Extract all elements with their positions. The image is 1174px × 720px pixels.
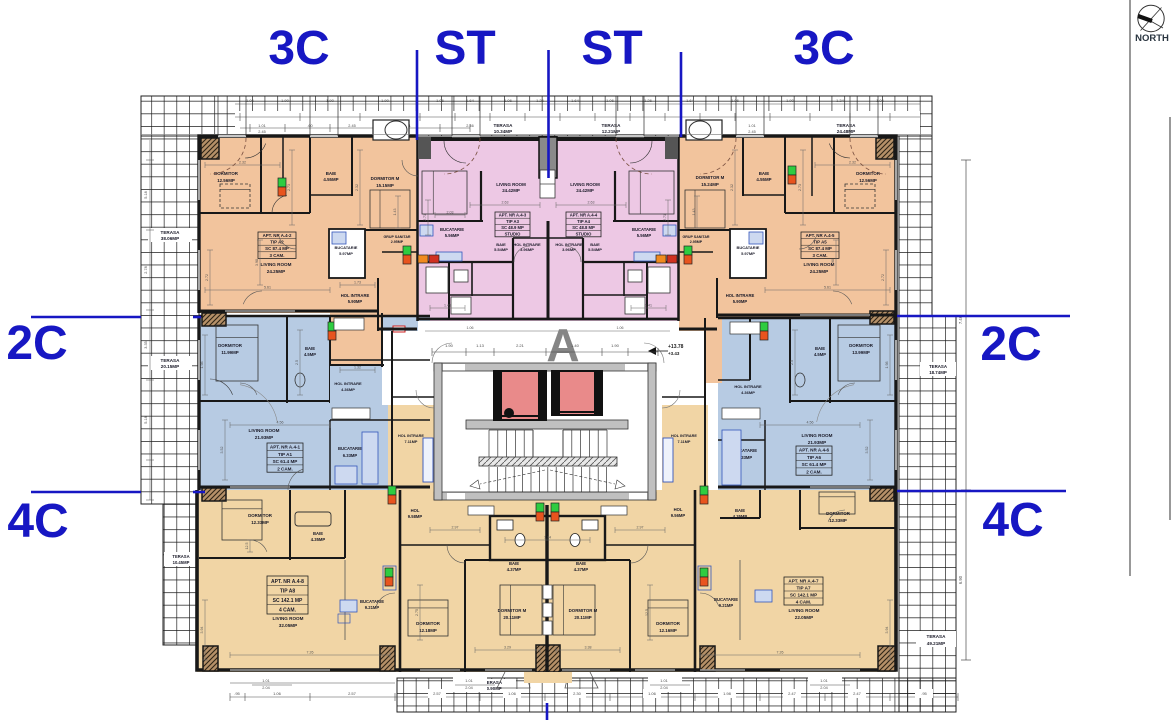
svg-text:32.05MP: 32.05MP [279, 623, 297, 628]
svg-text:9.56MP: 9.56MP [671, 513, 686, 518]
svg-text:DORMITOR: DORMITOR [849, 343, 874, 348]
svg-text:1.06: 1.06 [504, 98, 513, 103]
svg-text:4.56: 4.56 [807, 421, 814, 425]
svg-text:TIP A6: TIP A6 [807, 455, 821, 460]
svg-text:STUDIO: STUDIO [576, 231, 593, 236]
svg-text:2.97: 2.97 [637, 526, 644, 530]
svg-text:1.64: 1.64 [686, 98, 695, 103]
svg-text:1.41: 1.41 [444, 304, 451, 308]
svg-text:2.45: 2.45 [748, 130, 755, 134]
svg-text:1.73: 1.73 [354, 281, 361, 285]
svg-text:2.71: 2.71 [663, 214, 667, 221]
svg-text:BAIE: BAIE [313, 531, 323, 536]
svg-text:3.29: 3.29 [504, 646, 511, 650]
svg-text:HOL INTRARE: HOL INTRARE [334, 381, 362, 386]
svg-text:HOL INTRARE: HOL INTRARE [726, 293, 755, 298]
svg-text:15.24MP: 15.24MP [701, 182, 719, 187]
svg-text:HOL INTRARE: HOL INTRARE [398, 434, 424, 438]
svg-text:12.18MP: 12.18MP [419, 628, 437, 633]
svg-text:2.47: 2.47 [853, 691, 862, 696]
svg-text:TERASA: TERASA [161, 358, 181, 363]
svg-text:LIVING ROOM: LIVING ROOM [249, 428, 280, 433]
svg-text:21.93MP: 21.93MP [808, 440, 826, 445]
svg-text:1.06: 1.06 [273, 691, 282, 696]
svg-text:3.94: 3.94 [885, 627, 889, 634]
svg-text:4C: 4C [982, 494, 1043, 547]
svg-text:4.55MP: 4.55MP [323, 177, 338, 182]
svg-text:1.06: 1.06 [606, 98, 615, 103]
svg-text:5.54MP: 5.54MP [588, 247, 602, 252]
svg-text:HOL: HOL [411, 508, 420, 513]
svg-text:2.75: 2.75 [415, 609, 419, 616]
svg-text:2.32: 2.32 [239, 161, 246, 165]
svg-text:2.04: 2.04 [262, 686, 269, 690]
svg-text:BUCATARIE: BUCATARIE [714, 597, 738, 602]
svg-text:5.61: 5.61 [824, 286, 831, 290]
svg-text:BUCATARIE: BUCATARIE [632, 227, 656, 232]
svg-text:2.04: 2.04 [820, 686, 827, 690]
svg-text:4C: 4C [7, 495, 68, 548]
svg-text:4.5MP: 4.5MP [814, 352, 826, 357]
svg-text:TIP A2: TIP A2 [270, 240, 284, 245]
svg-text:3C: 3C [268, 22, 329, 75]
svg-text:9.58MP: 9.58MP [408, 514, 423, 519]
svg-text:LIVING ROOM: LIVING ROOM [789, 608, 820, 613]
svg-text:2.57: 2.57 [348, 691, 357, 696]
svg-text:10.34MP: 10.34MP [494, 129, 512, 134]
svg-text:5.97MP: 5.97MP [339, 251, 353, 256]
svg-text:+3.43: +3.43 [668, 351, 680, 356]
svg-text:TERASA: TERASA [927, 634, 947, 639]
svg-text:3.52: 3.52 [220, 447, 224, 454]
svg-text:BAIE: BAIE [815, 346, 825, 351]
svg-text:BUCATARIE: BUCATARIE [737, 245, 760, 250]
svg-text:20.11MP: 20.11MP [503, 615, 520, 620]
svg-text:7.11MP: 7.11MP [678, 440, 691, 444]
svg-text:2.73: 2.73 [798, 184, 802, 191]
svg-text:12.5: 12.5 [245, 543, 249, 550]
svg-text:APT. NR A.4-1: APT. NR A.4-1 [270, 444, 301, 449]
svg-text:GRUP SANITAR: GRUP SANITAR [682, 235, 709, 239]
svg-text:12.21MP: 12.21MP [602, 129, 620, 134]
svg-text:DORMITOR: DORMITOR [218, 343, 243, 348]
svg-text:1.06: 1.06 [617, 326, 624, 330]
svg-text:APT. NR A.4-8: APT. NR A.4-8 [271, 579, 304, 585]
svg-text:2C: 2C [6, 317, 67, 370]
svg-text:TIP A1: TIP A1 [278, 452, 292, 457]
svg-text:TIP A5: TIP A5 [813, 240, 827, 245]
svg-text:APT. NR A.4-7: APT. NR A.4-7 [788, 578, 819, 583]
svg-text:2.5: 2.5 [295, 360, 299, 365]
svg-text:DORMITOR: DORMITOR [214, 171, 239, 176]
svg-text:2.32: 2.32 [355, 184, 359, 191]
svg-text:3.94: 3.94 [200, 627, 204, 634]
svg-text:4.37MP: 4.37MP [574, 567, 589, 572]
svg-text:DORMITOR M: DORMITOR M [371, 176, 400, 181]
svg-text:24.42MP: 24.42MP [502, 188, 520, 193]
svg-text:5.54MP: 5.54MP [494, 247, 508, 252]
svg-text:2.32: 2.32 [730, 184, 734, 191]
svg-text:+13.78: +13.78 [668, 344, 684, 350]
svg-text:LIVING ROOM: LIVING ROOM [261, 262, 292, 267]
svg-text:20.15MP: 20.15MP [161, 364, 179, 369]
svg-text:4.36MP: 4.36MP [341, 387, 355, 392]
svg-text:38.06MP: 38.06MP [161, 236, 179, 241]
svg-text:APT. NR A.4-2: APT. NR A.4-2 [263, 233, 292, 238]
svg-text:HOL INTRARE: HOL INTRARE [341, 293, 370, 298]
svg-text:6.33MP: 6.33MP [343, 453, 358, 458]
svg-text:TIP A3: TIP A3 [506, 219, 519, 224]
svg-text:1.01: 1.01 [262, 679, 269, 683]
svg-text:2.04: 2.04 [465, 686, 472, 690]
svg-text:1.01: 1.01 [820, 679, 827, 683]
svg-text:SC 61.4 MP: SC 61.4 MP [273, 459, 298, 464]
svg-text:NORTH: NORTH [1135, 33, 1169, 44]
svg-text:2.63: 2.63 [502, 201, 509, 205]
svg-text:HOL INTRARE: HOL INTRARE [734, 384, 762, 389]
svg-text:4.35MP: 4.35MP [311, 537, 326, 542]
svg-text:TERASA: TERASA [837, 123, 857, 128]
svg-text:SC 48.9 MP: SC 48.9 MP [501, 225, 524, 230]
svg-text:DORMITOR: DORMITOR [656, 621, 681, 626]
svg-text:BAIE: BAIE [759, 171, 770, 176]
svg-text:BUCATARIE: BUCATARIE [360, 599, 384, 604]
svg-text:1.98: 1.98 [885, 362, 889, 369]
svg-text:1.06: 1.06 [508, 691, 517, 696]
svg-text:2 CAM.: 2 CAM. [277, 466, 293, 471]
svg-text:4.37MP: 4.37MP [507, 567, 522, 572]
svg-text:DORMITOR M: DORMITOR M [569, 608, 598, 613]
svg-text:1.26: 1.26 [536, 98, 545, 103]
svg-text:APT. NR A.4-6: APT. NR A.4-6 [799, 447, 830, 452]
svg-text:LIVING ROOM: LIVING ROOM [802, 433, 833, 438]
svg-text:1.26: 1.26 [644, 98, 653, 103]
svg-text:9.21MP: 9.21MP [719, 603, 734, 608]
svg-text:2.72: 2.72 [881, 274, 885, 281]
svg-text:5.18: 5.18 [144, 191, 148, 198]
svg-text:18.74MP: 18.74MP [929, 370, 947, 375]
svg-text:4 CAM.: 4 CAM. [796, 599, 812, 604]
svg-text:2.30: 2.30 [573, 691, 582, 696]
svg-text:5.18: 5.18 [144, 416, 148, 423]
svg-text:2.57: 2.57 [433, 691, 442, 696]
svg-text:24.48MP: 24.48MP [837, 129, 855, 134]
svg-text:2.72: 2.72 [205, 274, 209, 281]
svg-text:DORMITOR M: DORMITOR M [696, 175, 725, 180]
svg-text:TERASA: TERASA [602, 123, 622, 128]
svg-text:5.90MP: 5.90MP [348, 299, 363, 304]
svg-text:2.71: 2.71 [423, 214, 427, 221]
svg-text:4.36MP: 4.36MP [741, 390, 755, 395]
svg-text:3.98: 3.98 [831, 259, 835, 266]
svg-text:1.41: 1.41 [645, 304, 652, 308]
svg-text:1.64: 1.64 [466, 98, 475, 103]
svg-text:5.56MP: 5.56MP [637, 233, 652, 238]
svg-text:TERASA: TERASA [494, 123, 514, 128]
svg-text:5.61: 5.61 [264, 286, 271, 290]
svg-text:2.04: 2.04 [660, 686, 667, 690]
svg-text:2.73: 2.73 [287, 184, 291, 191]
svg-text:TIP A8: TIP A8 [280, 589, 296, 595]
svg-text:5.56MP: 5.56MP [445, 233, 460, 238]
svg-text:SC 87.4 MP: SC 87.4 MP [265, 246, 289, 251]
svg-text:BAIE: BAIE [326, 171, 337, 176]
svg-text:SC 142.1 MP: SC 142.1 MP [790, 592, 817, 597]
svg-text:3.96MP: 3.96MP [562, 247, 576, 252]
svg-text:1.32: 1.32 [354, 366, 361, 370]
svg-text:12.16MP: 12.16MP [659, 628, 677, 633]
svg-text:3.98: 3.98 [255, 259, 259, 266]
svg-text:4.35MP: 4.35MP [733, 514, 748, 519]
svg-text:BUCATARIE: BUCATARIE [440, 227, 464, 232]
svg-text:1.13: 1.13 [476, 343, 485, 348]
svg-text:9.21MP: 9.21MP [365, 605, 380, 610]
svg-text:24.42MP: 24.42MP [576, 188, 594, 193]
svg-text:3.35: 3.35 [144, 341, 148, 348]
svg-text:1.64: 1.64 [571, 98, 580, 103]
svg-text:SC 87.4 MP: SC 87.4 MP [808, 246, 832, 251]
svg-text:24.25MP: 24.25MP [267, 269, 285, 274]
svg-text:1.90: 1.90 [786, 98, 795, 103]
svg-text:TIP A4: TIP A4 [577, 219, 590, 224]
svg-text:BAIE: BAIE [735, 508, 745, 513]
svg-text:.95: .95 [234, 691, 240, 696]
svg-text:SC 61.4 MP: SC 61.4 MP [802, 462, 827, 467]
svg-text:2.63: 2.63 [588, 201, 595, 205]
svg-text:7.26: 7.26 [777, 651, 784, 655]
svg-text:24.25MP: 24.25MP [810, 269, 828, 274]
svg-text:BUCATARIE: BUCATARIE [338, 446, 362, 451]
svg-text:LIVING ROOM: LIVING ROOM [496, 182, 526, 187]
svg-text:DORMITOR: DORMITOR [248, 513, 273, 518]
svg-text:APT. NR A.4-4: APT. NR A.4-4 [570, 213, 598, 218]
svg-text:2.5: 2.5 [790, 360, 794, 365]
svg-text:12.56MP: 12.56MP [217, 178, 235, 183]
svg-text:7.11MP: 7.11MP [405, 440, 418, 444]
svg-text:STUDIO: STUDIO [505, 231, 522, 236]
svg-text:6.90: 6.90 [958, 575, 963, 584]
svg-text:GRUP SANITAR: GRUP SANITAR [383, 235, 410, 239]
svg-text:7.26: 7.26 [307, 651, 314, 655]
svg-text:1.06: 1.06 [436, 98, 445, 103]
svg-text:1.01: 1.01 [748, 124, 755, 128]
svg-text:11.99MP: 11.99MP [221, 350, 238, 355]
svg-text:4 CAM.: 4 CAM. [279, 608, 297, 614]
svg-text:1.98: 1.98 [200, 362, 204, 369]
svg-text:TERASA: TERASA [172, 554, 189, 559]
svg-text:1.01: 1.01 [258, 124, 265, 128]
svg-text:1.43: 1.43 [692, 209, 696, 216]
svg-text:LIVING ROOM: LIVING ROOM [570, 182, 600, 187]
svg-text:TERASA: TERASA [161, 230, 181, 235]
svg-text:HOL INTRARE: HOL INTRARE [671, 434, 697, 438]
svg-text:1.90: 1.90 [381, 98, 390, 103]
svg-text:LIVING ROOM: LIVING ROOM [804, 262, 835, 267]
svg-text:SC 48.8 MP: SC 48.8 MP [572, 225, 595, 230]
svg-text:2.78: 2.78 [144, 266, 148, 273]
svg-text:1.98: 1.98 [723, 691, 732, 696]
svg-text:13.99MP: 13.99MP [852, 350, 870, 355]
svg-text:49.21MP: 49.21MP [927, 641, 945, 646]
svg-text:2.03: 2.03 [447, 211, 454, 215]
svg-text:2.95MP: 2.95MP [690, 240, 703, 244]
svg-text:2 CAM.: 2 CAM. [806, 469, 822, 474]
svg-text:2.95MP: 2.95MP [391, 240, 404, 244]
svg-text:20.11MP: 20.11MP [574, 615, 591, 620]
svg-text:4.55MP: 4.55MP [756, 177, 771, 182]
svg-text:2.32: 2.32 [849, 161, 856, 165]
svg-text:2.97: 2.97 [452, 526, 459, 530]
svg-text:3 CAM.: 3 CAM. [270, 253, 285, 258]
svg-text:3.52: 3.52 [865, 447, 869, 454]
svg-text:APT. NR A.4-5: APT. NR A.4-5 [806, 233, 835, 238]
svg-text:3C: 3C [793, 22, 854, 75]
svg-text:DORMITOR: DORMITOR [826, 511, 851, 516]
svg-text:22.05MP: 22.05MP [795, 615, 813, 620]
svg-text:APT. NR A.4-3: APT. NR A.4-3 [499, 213, 527, 218]
svg-text:HOL: HOL [674, 507, 683, 512]
svg-text:.95: .95 [921, 691, 927, 696]
svg-text:3.38: 3.38 [585, 646, 592, 650]
svg-text:1.90: 1.90 [281, 98, 290, 103]
svg-text:10.45MP: 10.45MP [173, 560, 190, 565]
svg-text:BAIE: BAIE [576, 561, 586, 566]
svg-text:ST: ST [434, 22, 495, 75]
svg-text:2.45: 2.45 [348, 124, 355, 128]
svg-text:1.06: 1.06 [731, 98, 740, 103]
svg-text:12.5: 12.5 [645, 609, 649, 616]
svg-text:BAIE: BAIE [305, 346, 315, 351]
svg-text:12.56MP: 12.56MP [859, 178, 877, 183]
svg-text:1.90: 1.90 [611, 343, 620, 348]
svg-text:BUCATARIE: BUCATARIE [335, 245, 358, 250]
svg-text:1.06: 1.06 [467, 326, 474, 330]
svg-text:12.33MP: 12.33MP [829, 518, 847, 523]
svg-text:2.46: 2.46 [466, 124, 473, 128]
svg-text:1.43: 1.43 [393, 209, 397, 216]
svg-text:2C: 2C [980, 318, 1041, 371]
svg-text:1.40: 1.40 [571, 343, 580, 348]
svg-text:4.56: 4.56 [277, 421, 284, 425]
svg-text:4.5MP: 4.5MP [304, 352, 316, 357]
svg-text:5.90MP: 5.90MP [733, 299, 748, 304]
svg-text:2.21: 2.21 [516, 343, 525, 348]
svg-text:2.45: 2.45 [258, 130, 265, 134]
svg-text:1.74: 1.74 [544, 536, 551, 540]
svg-text:TERASA: TERASA [929, 364, 948, 369]
svg-text:SC 142.1 MP: SC 142.1 MP [273, 598, 303, 604]
svg-text:1.06: 1.06 [246, 98, 255, 103]
svg-text:ST: ST [581, 22, 642, 75]
svg-text:1.01: 1.01 [660, 679, 667, 683]
svg-text:1.06: 1.06 [876, 98, 885, 103]
svg-text:TIP A7: TIP A7 [796, 585, 810, 590]
svg-text:12.33MP: 12.33MP [251, 520, 269, 525]
svg-text:DORMITOR: DORMITOR [856, 171, 881, 176]
svg-text:2.47: 2.47 [788, 691, 797, 696]
svg-text:1.01: 1.01 [465, 679, 472, 683]
svg-text:1.90: 1.90 [326, 98, 335, 103]
svg-text:1.34: 1.34 [836, 98, 845, 103]
svg-text:LIVING ROOM: LIVING ROOM [273, 616, 304, 621]
svg-text:21.93MP: 21.93MP [255, 435, 273, 440]
svg-text:BAIE: BAIE [509, 561, 519, 566]
svg-text:15.15MP: 15.15MP [376, 183, 394, 188]
svg-text:3 CAM.: 3 CAM. [813, 253, 828, 258]
svg-text:DORMITOR M: DORMITOR M [498, 608, 527, 613]
svg-text:5.97MP: 5.97MP [741, 251, 755, 256]
